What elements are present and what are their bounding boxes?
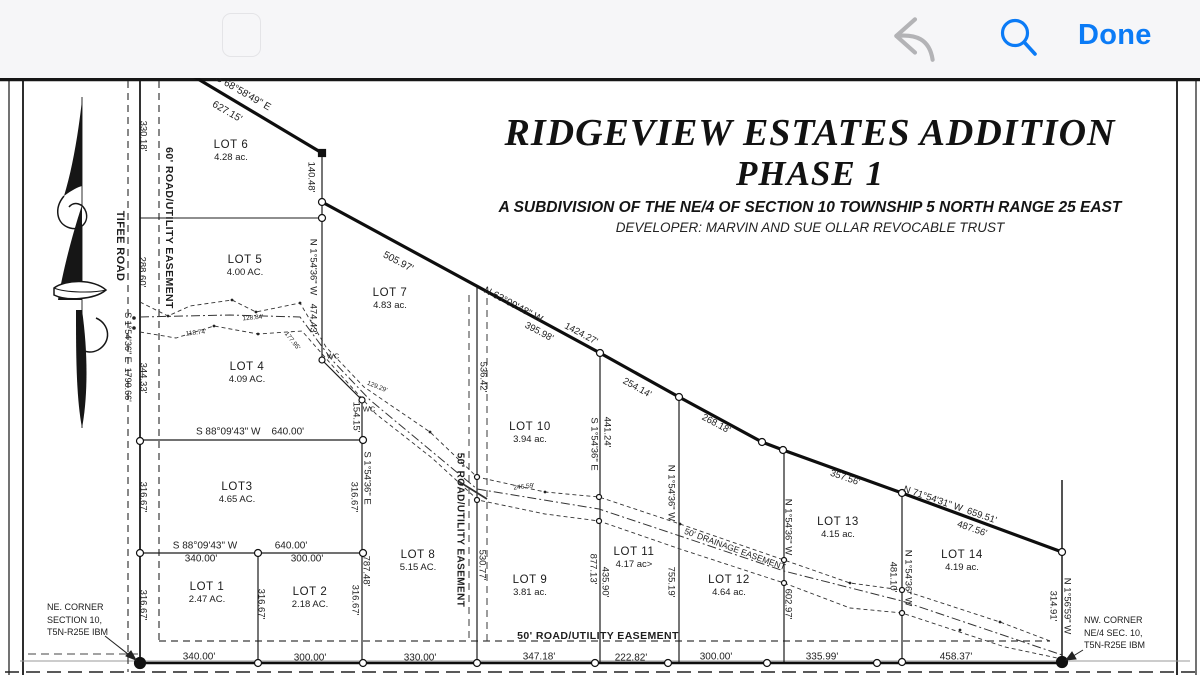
undo-button[interactable] xyxy=(886,10,944,66)
document-viewer: S 68°58'49" E627.15'330.18'288.60'344.33… xyxy=(0,0,1200,675)
search-button[interactable] xyxy=(996,14,1042,62)
road-easement-lines xyxy=(128,81,1050,672)
creek-dots xyxy=(132,299,1001,632)
plat-page[interactable]: S 68°58'49" E627.15'330.18'288.60'344.33… xyxy=(0,0,1200,675)
boundary-lines xyxy=(140,76,1062,663)
done-button[interactable]: Done xyxy=(1078,19,1152,52)
lot-lines xyxy=(137,81,1062,663)
undo-icon xyxy=(896,19,932,59)
north-arrow xyxy=(54,97,108,428)
markup-button[interactable] xyxy=(222,13,261,57)
survey-nodes xyxy=(135,150,1068,669)
plat-geometry xyxy=(0,0,1200,675)
toolbar: Done xyxy=(0,0,1200,78)
leader-arrows xyxy=(105,636,1083,660)
search-icon xyxy=(1003,21,1036,55)
